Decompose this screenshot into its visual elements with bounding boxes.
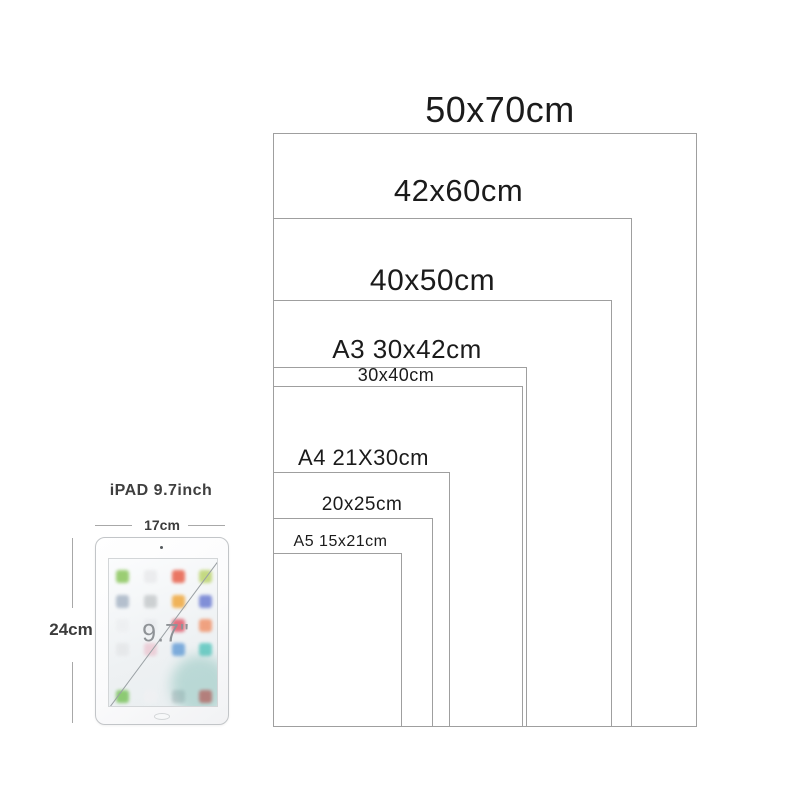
height-measure-line-bottom	[72, 662, 73, 723]
app-icon	[199, 619, 212, 632]
size-label-50x70cm: 50x70cm	[425, 92, 575, 128]
ipad-camera-icon	[160, 546, 163, 549]
size-label-30x40cm: 30x40cm	[358, 366, 435, 384]
size-comparison-diagram: 50x70cm42x60cm40x50cmA3 30x42cm30x40cmA4…	[0, 0, 800, 800]
app-icon	[144, 570, 157, 583]
size-label-a3-30x42cm: A3 30x42cm	[332, 336, 482, 362]
ipad-title: iPAD 9.7inch	[110, 482, 213, 500]
app-icon	[116, 643, 129, 656]
height-measure-line-top	[72, 538, 73, 608]
app-icon	[144, 690, 157, 703]
ipad-home-button-icon	[154, 713, 170, 720]
app-icon	[116, 619, 129, 632]
width-measure-label: 17cm	[144, 517, 180, 533]
size-label-20x25cm: 20x25cm	[322, 495, 403, 514]
app-icon	[116, 595, 129, 608]
app-icon	[116, 570, 129, 583]
app-icon	[144, 595, 157, 608]
size-box-a5-15x21cm	[273, 553, 402, 727]
size-label-a4-21x30cm: A4 21X30cm	[298, 447, 429, 469]
height-measure-label: 24cm	[49, 620, 92, 640]
size-label-40x50cm: 40x50cm	[370, 266, 495, 296]
app-icon	[172, 570, 185, 583]
size-label-a5-15x21cm: A5 15x21cm	[294, 534, 388, 550]
wallpaper-landscape-blob	[171, 655, 218, 707]
app-icon	[199, 595, 212, 608]
ipad-screen: 9.7"	[108, 558, 218, 707]
width-measure-line-right	[188, 525, 225, 526]
width-measure-line-left	[95, 525, 132, 526]
diagonal-size-label: 9.7"	[142, 620, 190, 649]
size-label-42x60cm: 42x60cm	[394, 175, 523, 206]
ipad-body: 9.7"	[95, 537, 229, 725]
